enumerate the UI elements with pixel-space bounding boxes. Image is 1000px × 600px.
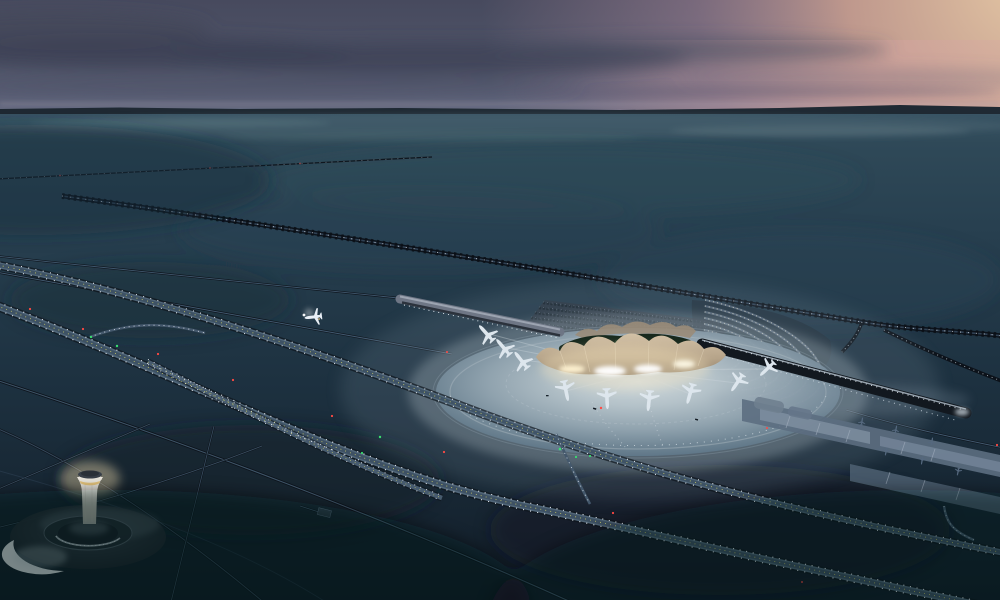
landing-light <box>303 314 306 317</box>
cloud-wisp <box>520 87 1000 97</box>
airport-dusk-render <box>0 0 1000 600</box>
render-canvas <box>0 0 1000 600</box>
horizon-pale-band <box>0 102 1000 106</box>
sky <box>0 0 1000 118</box>
